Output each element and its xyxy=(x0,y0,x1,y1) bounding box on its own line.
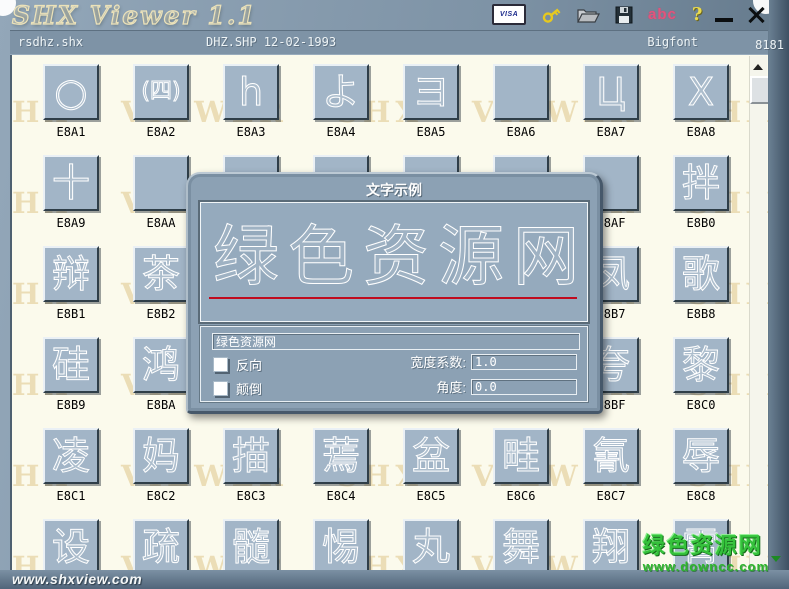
glyph-code-label: E8A6 xyxy=(507,125,536,139)
glyph-button[interactable]: 鸿 xyxy=(133,337,189,393)
help-icon-label: ? xyxy=(692,4,703,25)
site-watermark-url: www.downcc.com xyxy=(643,560,769,574)
glyph-preview: 设 xyxy=(52,528,90,566)
glyph-button[interactable]: ○ xyxy=(43,64,99,120)
glyph-cell: 舞 xyxy=(476,515,566,573)
glyph-cell: 凌E8C1 xyxy=(26,424,116,515)
scroll-up-icon[interactable] xyxy=(753,64,763,70)
glyph-code-label: E8B2 xyxy=(147,307,176,321)
glyph-cell: 十E8A9 xyxy=(26,151,116,242)
glyph-button[interactable]: 蔫 xyxy=(313,428,369,484)
glyph-button[interactable]: 歌 xyxy=(673,246,729,302)
glyph-preview: 妈 xyxy=(142,437,180,475)
glyph-cell: 辱E8C8 xyxy=(656,424,746,515)
glyph-cell: 硅E8B9 xyxy=(26,333,116,424)
glyph-button[interactable] xyxy=(493,64,549,120)
glyph-preview: 惕 xyxy=(322,528,360,566)
glyph-preview: 盆 xyxy=(412,437,450,475)
glyph-button[interactable]: 髓 xyxy=(223,519,279,573)
glyph-cell: ○E8A1 xyxy=(26,60,116,151)
visa-icon[interactable]: VISA xyxy=(492,4,526,25)
glyph-preview: 拌 xyxy=(682,164,720,202)
glyph-preview: 髓 xyxy=(232,528,270,566)
glyph-code-label: E8A9 xyxy=(57,216,86,230)
preview-text: 绿色资源网 xyxy=(213,211,588,303)
flip-checkbox-label: 颠倒 xyxy=(236,379,262,398)
glyph-button[interactable]: Х xyxy=(673,64,729,120)
minimize-button[interactable] xyxy=(715,4,733,26)
glyph-cell: 髓 xyxy=(206,515,296,573)
titlebar: SHX Viewer 1.1 VISA xyxy=(0,0,789,30)
glyph-button[interactable]: 辩 xyxy=(43,246,99,302)
angle-label: 角度: xyxy=(436,377,466,396)
glyph-button[interactable]: 舞 xyxy=(493,519,549,573)
glyph-code-label: E8B8 xyxy=(687,307,716,321)
glyph-cell: 丸 xyxy=(386,515,476,573)
glyph-cell: 惕 xyxy=(296,515,386,573)
glyph-code-label: E8C7 xyxy=(597,489,626,503)
glyph-preview: 辩 xyxy=(52,255,90,293)
site-url-label: www.shxview.com xyxy=(12,571,142,587)
glyph-code-label: E8C2 xyxy=(147,489,176,503)
key-icon[interactable] xyxy=(541,5,561,25)
glyph-code-label: E8B0 xyxy=(687,216,716,230)
reverse-checkbox-label: 反向 xyxy=(236,355,262,374)
glyph-button[interactable]: よ xyxy=(313,64,369,120)
text-sample-dialog: 文字示例 绿色资源网 反向 颠倒 宽度系数: 角度: xyxy=(186,172,603,414)
glyph-code-label: E8A2 xyxy=(147,125,176,139)
window-frame-right xyxy=(769,0,789,589)
app-window: SHX Viewer 1.1 VISA xyxy=(0,0,789,589)
glyph-cell: ХE8A8 xyxy=(656,60,746,151)
status-file-name: rsdhz.shx xyxy=(18,35,83,49)
glyph-cell: 描E8C3 xyxy=(206,424,296,515)
glyph-button[interactable]: (四) xyxy=(133,64,189,120)
glyph-preview: 凌 xyxy=(52,437,90,475)
glyph-preview: ○ xyxy=(54,73,87,111)
open-folder-icon[interactable] xyxy=(576,6,600,24)
glyph-code-label: E8A4 xyxy=(327,125,356,139)
flip-option: 颠倒 xyxy=(213,379,262,398)
app-title: SHX Viewer 1.1 xyxy=(12,1,257,30)
glyph-button[interactable]: 硅 xyxy=(43,337,99,393)
glyph-code-label: E8A7 xyxy=(597,125,626,139)
glyph-cell: 设 xyxy=(26,515,116,573)
glyph-preview: (四) xyxy=(141,81,180,103)
status-file-info: DHZ.SHP 12-02-1993 xyxy=(206,35,336,49)
glyph-cell: 畦E8C6 xyxy=(476,424,566,515)
reverse-checkbox[interactable] xyxy=(213,357,228,372)
glyph-cell: 氰E8C7 xyxy=(566,424,656,515)
glyph-preview: ヨ xyxy=(412,73,450,111)
glyph-button[interactable]: 惕 xyxy=(313,519,369,573)
glyph-preview: 歌 xyxy=(682,255,720,293)
scrollbar-thumb[interactable] xyxy=(750,76,768,104)
glyph-code-label: E8C4 xyxy=(327,489,356,503)
dialog-title: 文字示例 xyxy=(188,180,600,200)
glyph-cell: 歌E8B8 xyxy=(656,242,746,333)
glyph-button[interactable]: ヨ xyxy=(403,64,459,120)
glyph-preview: 疏 xyxy=(142,528,180,566)
abc-text-icon-label: abc xyxy=(648,6,677,23)
glyph-button[interactable]: Ц xyxy=(583,64,639,120)
glyph-preview: h xyxy=(239,73,263,111)
glyph-code-label: E8A5 xyxy=(417,125,446,139)
glyph-preview: 翔 xyxy=(592,528,630,566)
site-watermark-arrow-icon xyxy=(771,556,781,562)
glyph-preview: 畦 xyxy=(502,437,540,475)
glyph-cell: 拌E8B0 xyxy=(656,151,746,242)
glyph-cell: ЦE8A7 xyxy=(566,60,656,151)
glyph-button[interactable]: 疏 xyxy=(133,519,189,573)
glyph-button[interactable]: 妈 xyxy=(133,428,189,484)
glyph-cell: 疏 xyxy=(116,515,206,573)
glyph-preview: 丸 xyxy=(412,528,450,566)
glyph-button[interactable]: 氰 xyxy=(583,428,639,484)
glyph-preview: 硅 xyxy=(52,346,90,384)
glyph-button[interactable]: 辱 xyxy=(673,428,729,484)
glyph-cell: 黎E8C0 xyxy=(656,333,746,424)
angle-field: 角度: xyxy=(436,377,577,396)
glyph-button[interactable]: 设 xyxy=(43,519,99,573)
glyph-button[interactable] xyxy=(133,155,189,211)
glyph-preview: Х xyxy=(688,73,714,111)
glyph-button[interactable]: 翔 xyxy=(583,519,639,573)
glyph-preview: 黎 xyxy=(682,346,720,384)
glyph-code-label: E8C1 xyxy=(57,489,86,503)
window-controls xyxy=(715,4,767,26)
glyph-code-label: E8B9 xyxy=(57,398,86,412)
statusbar: rsdhz.shx DHZ.SHP 12-02-1993 Bigfont xyxy=(10,30,768,55)
help-icon[interactable]: ? xyxy=(692,4,703,25)
glyph-code-label: E8A8 xyxy=(687,125,716,139)
width-factor-input[interactable] xyxy=(471,354,577,370)
visa-icon-box: VISA xyxy=(492,4,526,25)
glyph-cell: 妈E8C2 xyxy=(116,424,206,515)
angle-input[interactable] xyxy=(471,379,577,395)
dialog-controls: 反向 颠倒 宽度系数: 角度: xyxy=(200,326,588,402)
glyph-cell: 辩E8B1 xyxy=(26,242,116,333)
glyph-code-label: E8A3 xyxy=(237,125,266,139)
glyph-preview: 十 xyxy=(52,164,90,202)
preview-underline xyxy=(209,297,577,299)
glyph-preview: よ xyxy=(322,73,360,111)
glyph-cell: hE8A3 xyxy=(206,60,296,151)
glyph-cell: E8A6 xyxy=(476,60,566,151)
glyph-code-label: E8B1 xyxy=(57,307,86,321)
width-factor-label: 宽度系数: xyxy=(410,352,466,371)
glyph-preview: 辱 xyxy=(682,437,720,475)
glyph-code-label: E8C0 xyxy=(687,398,716,412)
glyph-cell: 盆E8C5 xyxy=(386,424,476,515)
toolbar: VISA xyxy=(492,4,702,25)
sample-text-input[interactable] xyxy=(212,333,580,350)
glyph-preview: Ц xyxy=(596,73,626,111)
glyph-button[interactable]: 描 xyxy=(223,428,279,484)
glyph-code-label: E8AA xyxy=(147,216,176,230)
glyph-button[interactable]: 十 xyxy=(43,155,99,211)
glyph-preview: 茶 xyxy=(142,255,180,293)
width-factor-field: 宽度系数: xyxy=(410,352,577,371)
glyph-code-label: E8A1 xyxy=(57,125,86,139)
vertical-scrollbar[interactable] xyxy=(749,56,767,570)
glyph-code-label: E8C3 xyxy=(237,489,266,503)
status-glyph-count: 8181 xyxy=(755,38,784,52)
abc-text-icon[interactable]: abc xyxy=(648,6,677,23)
reverse-option: 反向 xyxy=(213,355,262,374)
site-watermark: 绿色资源网 www.downcc.com xyxy=(643,534,769,574)
glyph-preview: 舞 xyxy=(502,528,540,566)
glyph-preview: 鸿 xyxy=(142,346,180,384)
close-button[interactable] xyxy=(745,4,767,26)
glyph-button[interactable]: h xyxy=(223,64,279,120)
glyph-button[interactable]: 黎 xyxy=(673,337,729,393)
flip-checkbox[interactable] xyxy=(213,381,228,396)
glyph-cell: よE8A4 xyxy=(296,60,386,151)
save-icon[interactable] xyxy=(615,6,633,24)
glyph-code-label: E8C5 xyxy=(417,489,446,503)
glyph-code-label: E8BA xyxy=(147,398,176,412)
site-watermark-title: 绿色资源网 xyxy=(643,534,769,558)
glyph-button[interactable]: 凌 xyxy=(43,428,99,484)
glyph-cell: (四)E8A2 xyxy=(116,60,206,151)
status-font-type: Bigfont xyxy=(647,35,698,49)
glyph-button[interactable]: 茶 xyxy=(133,246,189,302)
glyph-button[interactable]: 畦 xyxy=(493,428,549,484)
text-preview-panel: 绿色资源网 xyxy=(200,202,588,322)
glyph-button[interactable]: 盆 xyxy=(403,428,459,484)
glyph-cell: ヨE8A5 xyxy=(386,60,476,151)
glyph-code-label: E8C8 xyxy=(687,489,716,503)
glyph-preview: 蔫 xyxy=(322,437,360,475)
glyph-button[interactable]: 拌 xyxy=(673,155,729,211)
glyph-preview: 描 xyxy=(232,437,270,475)
glyph-code-label: E8C6 xyxy=(507,489,536,503)
glyph-cell: 蔫E8C4 xyxy=(296,424,386,515)
glyph-button[interactable]: 丸 xyxy=(403,519,459,573)
glyph-preview: 氰 xyxy=(592,437,630,475)
visa-icon-label: VISA xyxy=(500,11,518,18)
